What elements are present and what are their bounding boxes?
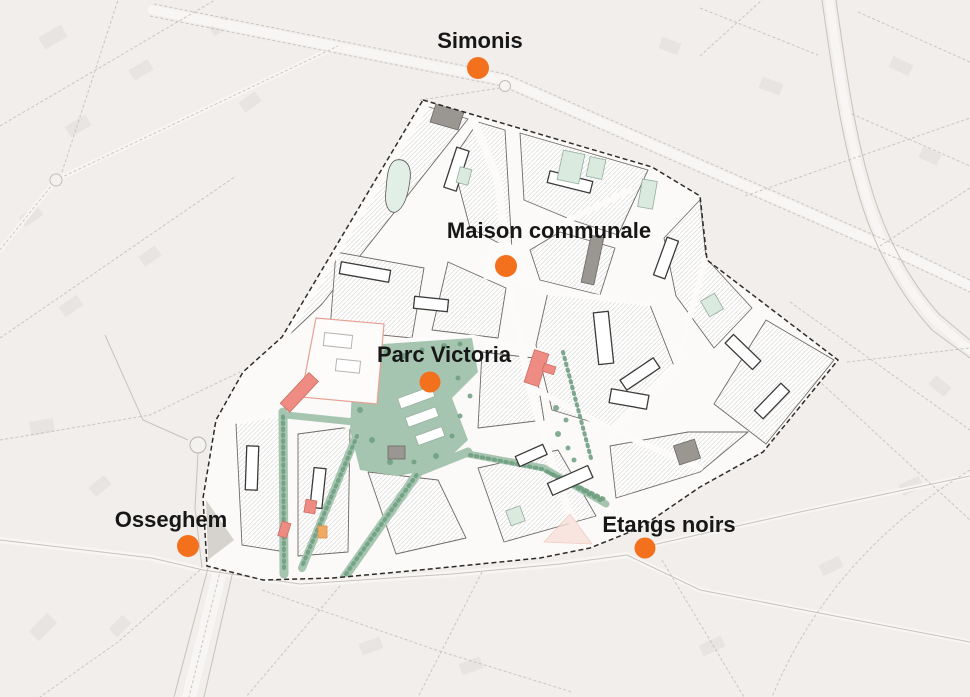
orange-building xyxy=(318,526,327,538)
station-label-osseghem: Osseghem xyxy=(115,507,228,532)
station-dot-etangs-noirs[interactable] xyxy=(635,538,656,559)
osseghem-roundabout xyxy=(190,437,206,453)
station-label-parc-victoria: Parc Victoria xyxy=(377,342,512,367)
west-roundabout xyxy=(50,174,62,186)
station-dot-osseghem[interactable] xyxy=(177,535,199,557)
station-label-etangs-noirs: Etangs noirs xyxy=(602,512,735,537)
station-label-maison-communale: Maison communale xyxy=(447,218,651,243)
simonis-roundabout xyxy=(500,81,511,92)
station-dot-parc-victoria[interactable] xyxy=(420,372,441,393)
station-dot-maison-communale[interactable] xyxy=(495,255,517,277)
victoria-masterplan-map: Simonis Maison communale Parc Victoria O… xyxy=(0,0,970,697)
station-dot-simonis[interactable] xyxy=(467,57,489,79)
station-label-simonis: Simonis xyxy=(437,28,523,53)
development-zone-west xyxy=(301,318,384,404)
map-figure: Simonis Maison communale Parc Victoria O… xyxy=(0,0,970,697)
